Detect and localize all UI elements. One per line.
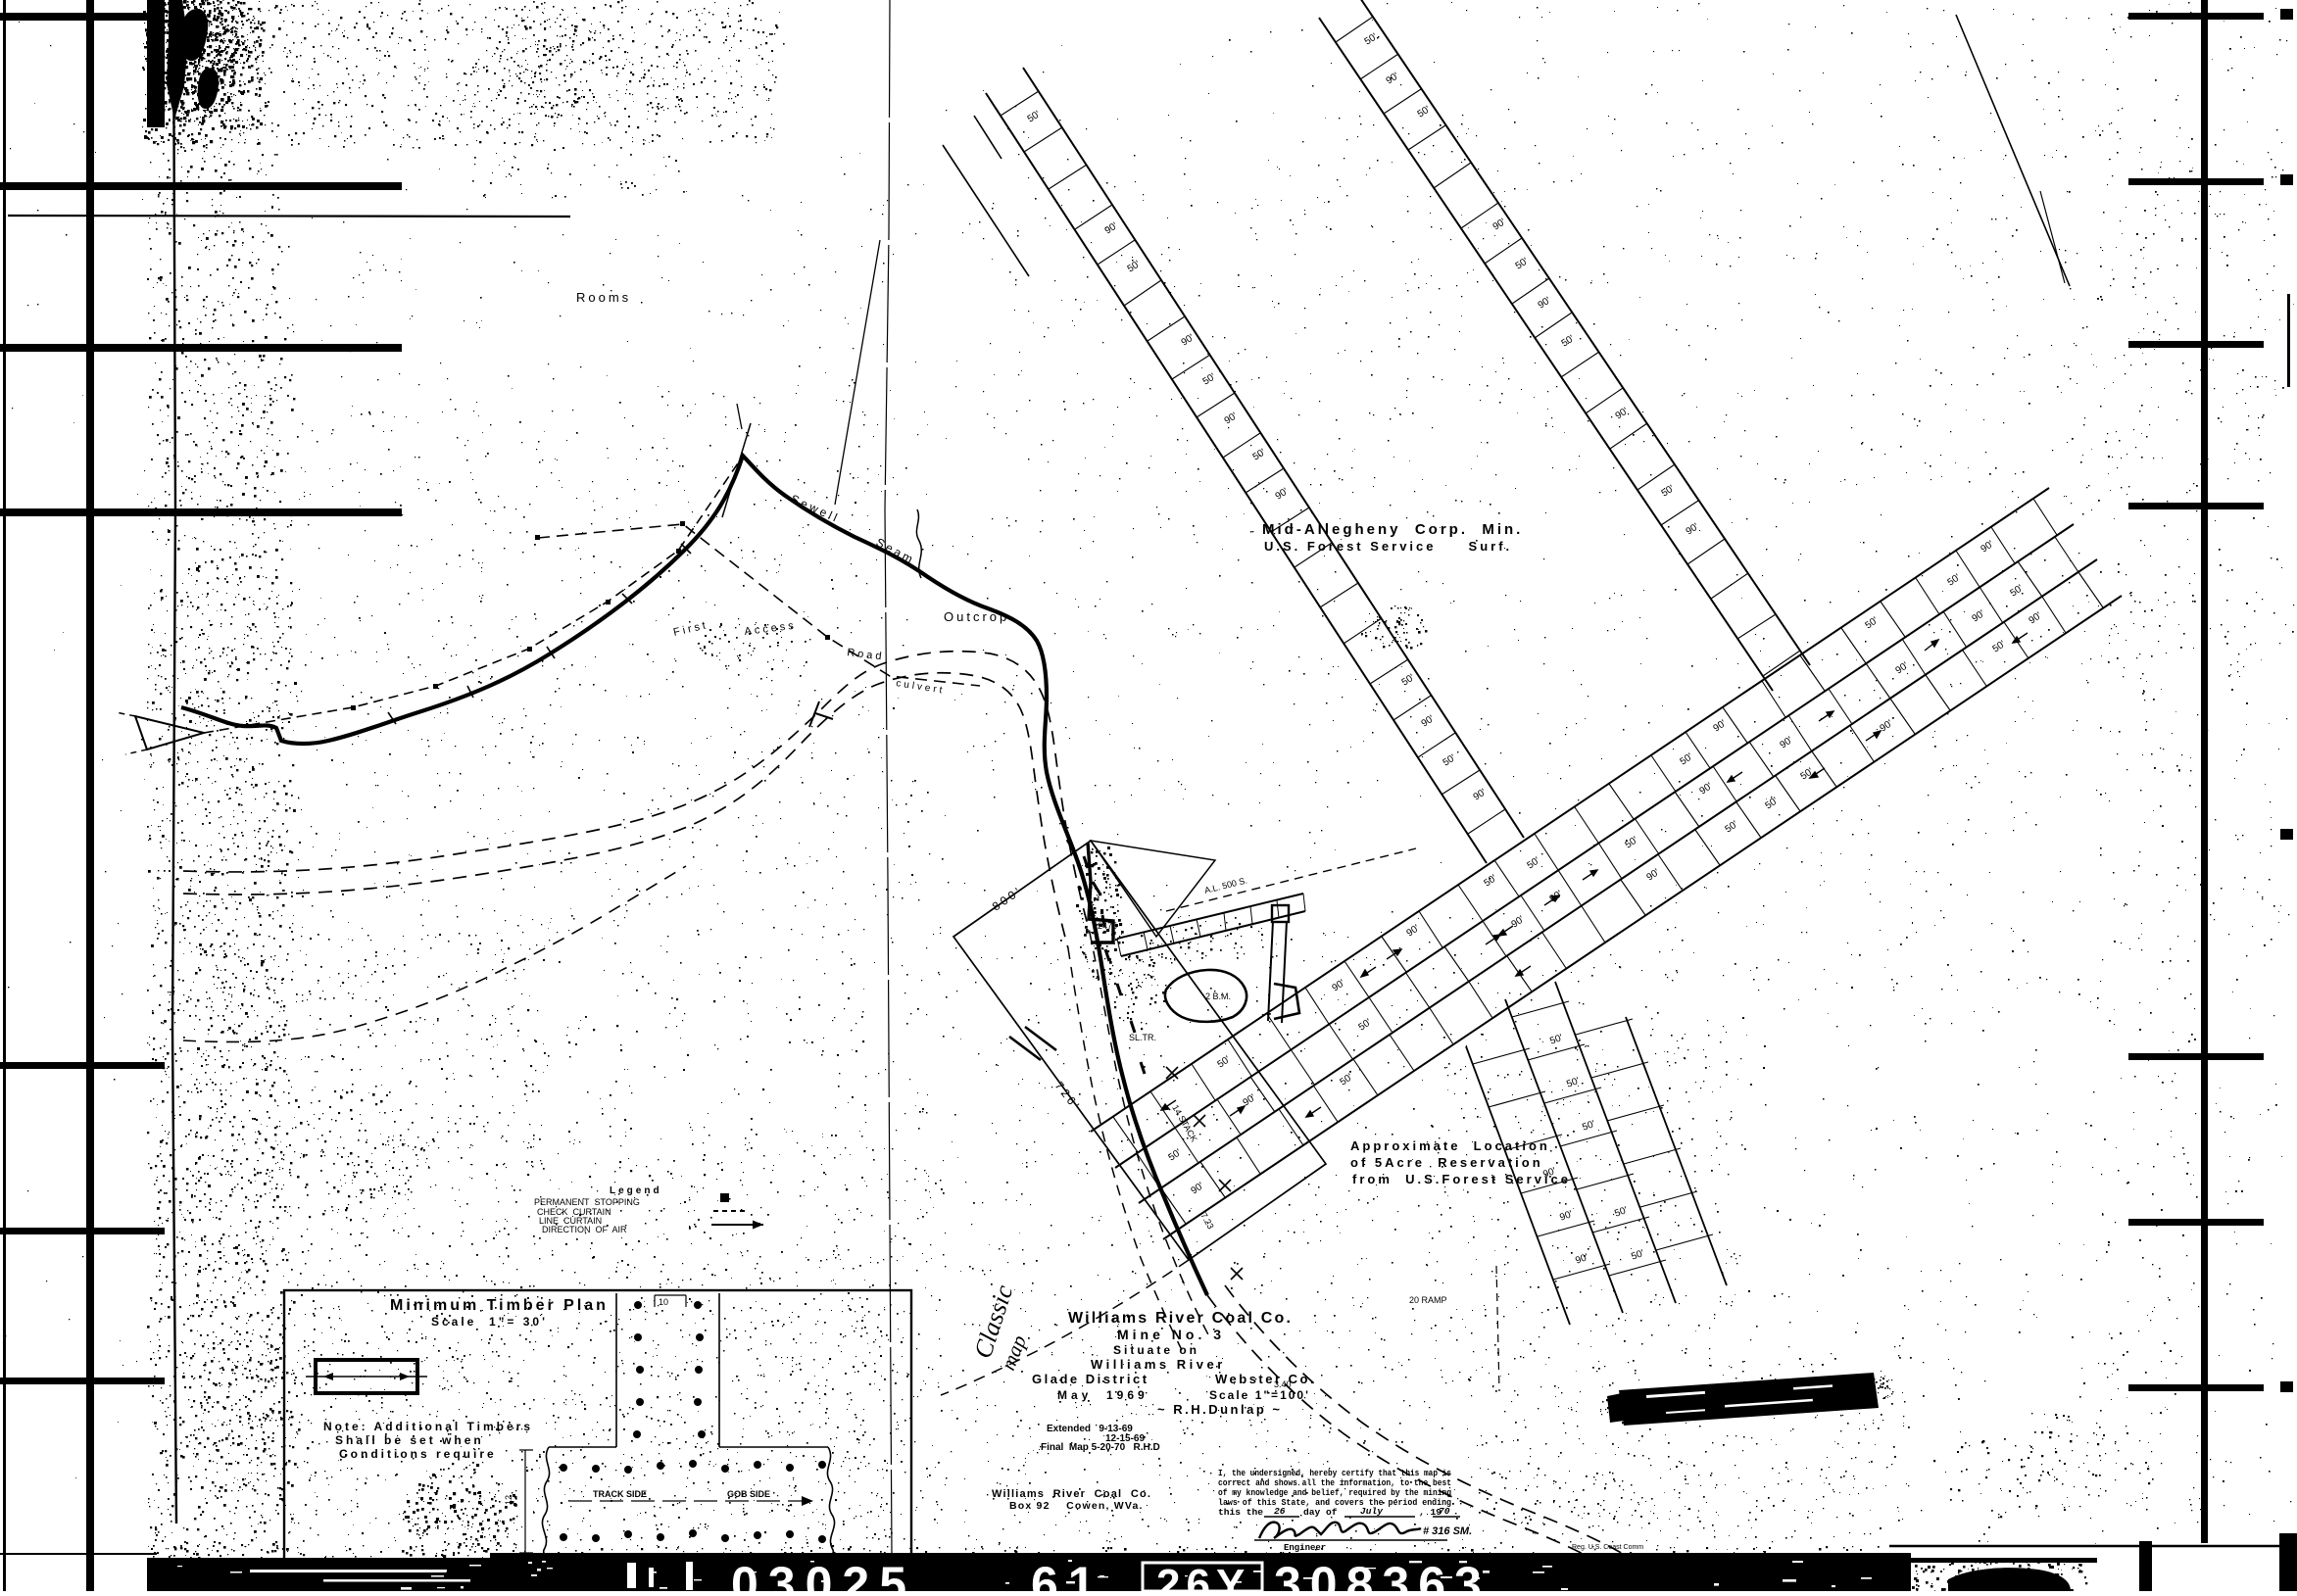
svg-text:TRACK SIDE: TRACK SIDE xyxy=(593,1489,647,1499)
svg-text:26Y: 26Y xyxy=(1156,1561,1250,1591)
svg-text:20 RAMP: 20 RAMP xyxy=(1409,1295,1447,1305)
svg-text:Williams River Coal Co.: Williams River Coal Co. xyxy=(1068,1310,1293,1327)
svg-text:Final Map 5-20-70 R.H.D: Final Map 5-20-70 R.H.D xyxy=(1041,1442,1160,1453)
svg-text:Mine No. 3: Mine No. 3 xyxy=(1117,1327,1225,1342)
svg-text:Outcrop: Outcrop xyxy=(944,609,1009,624)
svg-text:03025: 03025 xyxy=(731,1557,916,1591)
svg-text:DIRECTION OF AIR: DIRECTION OF AIR xyxy=(542,1225,627,1234)
svg-text:Conditions require: Conditions require xyxy=(339,1447,497,1461)
svg-text:GOB SIDE: GOB SIDE xyxy=(727,1489,770,1499)
svg-text:2 B.M.: 2 B.M. xyxy=(1205,991,1231,1001)
svg-text:Approximate Location: Approximate Location xyxy=(1350,1138,1550,1153)
svg-text:July: July xyxy=(1360,1506,1384,1517)
svg-text:~ R.H.Dunlap ~: ~ R.H.Dunlap ~ xyxy=(1157,1402,1282,1417)
svg-text:day of: day of xyxy=(1303,1507,1338,1518)
svg-text:10: 10 xyxy=(659,1297,668,1307)
svg-text:Williams River Coal Co.: Williams River Coal Co. xyxy=(992,1488,1151,1500)
svg-text:Legend: Legend xyxy=(610,1185,662,1196)
svg-text:Williams River: Williams River xyxy=(1091,1357,1226,1372)
svg-text:26: 26 xyxy=(1274,1506,1286,1517)
svg-text:PERMANENT STOPPING: PERMANENT STOPPING xyxy=(534,1197,640,1207)
svg-text:Engineer: Engineer xyxy=(1284,1543,1326,1553)
svg-text:Scale 1"=100': Scale 1"=100' xyxy=(1209,1388,1310,1402)
svg-text:Glade District: Glade District xyxy=(1032,1372,1149,1386)
svg-text:May 1969: May 1969 xyxy=(1057,1388,1148,1402)
svg-text:# 316 SM.: # 316 SM. xyxy=(1423,1525,1472,1537)
svg-text:12: 12 xyxy=(504,1495,513,1505)
svg-text:Webster Co.: Webster Co. xyxy=(1215,1372,1316,1386)
svg-text:Note: Additional Timbers: Note: Additional Timbers xyxy=(323,1420,533,1433)
svg-text:SL.TR.: SL.TR. xyxy=(1129,1033,1156,1042)
svg-text:from U.S.Forest Service: from U.S.Forest Service xyxy=(1352,1172,1571,1186)
svg-text:308363: 308363 xyxy=(1274,1557,1491,1591)
svg-text:Reg. U.S. Coast Comm: Reg. U.S. Coast Comm xyxy=(1572,1544,1643,1551)
svg-text:this the: this the xyxy=(1218,1507,1263,1518)
svg-text:Rooms: Rooms xyxy=(576,290,631,305)
svg-text:U.S. Forest Service Surf.: U.S. Forest Service Surf. xyxy=(1264,539,1512,554)
svg-text:70: 70 xyxy=(1439,1506,1450,1517)
svg-text:Situate on: Situate on xyxy=(1113,1343,1199,1357)
svg-text:of 5Acre Reservation: of 5Acre Reservation xyxy=(1350,1155,1543,1170)
svg-text:Mid-Allegheny Corp. Min.: Mid-Allegheny Corp. Min. xyxy=(1262,521,1523,538)
svg-text:Box 92 Cowen, WVa.: Box 92 Cowen, WVa. xyxy=(1009,1500,1144,1512)
svg-text:Minimum Timber Plan: Minimum Timber Plan xyxy=(390,1297,609,1314)
svg-text:Scale 1"= 30': Scale 1"= 30' xyxy=(431,1315,548,1329)
svg-text:61: 61 xyxy=(1031,1557,1105,1591)
svg-text:Shall be set when: Shall be set when xyxy=(335,1433,484,1447)
